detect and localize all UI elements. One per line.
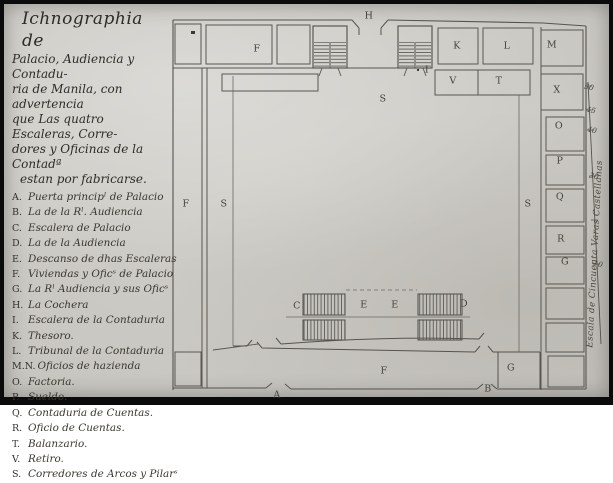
legend-entry: F.Viviendas y Oficˢ de Palacio <box>12 267 166 282</box>
legend-text: La de la Audiencia <box>26 237 126 249</box>
legend-entry: H.La Cochera <box>12 298 166 313</box>
legend-key: S. <box>12 468 26 482</box>
legend-key: L. <box>12 345 26 359</box>
legend-entry: A.Puerta principˡ de Palacio <box>12 190 166 205</box>
legend-text: Viviendas y Oficˢ de Palacio <box>26 268 173 280</box>
legend-entry: O.Factoria. <box>12 375 166 390</box>
legend-text: Escalera de Palacio <box>26 222 131 234</box>
legend-entry: L.Tribunal de la Contaduria <box>12 344 166 359</box>
legend-text: Descanso de dhas Escaleras <box>26 253 177 265</box>
legend-text: La Rˡ Audiencia y sus Oficˢ <box>26 283 168 295</box>
legend-text: La Cochera <box>26 299 88 311</box>
legend-text: Oficios de hazienda <box>35 360 140 372</box>
legend-key: O. <box>12 376 26 390</box>
legend-key: P. <box>12 391 26 405</box>
legend-text: Oficio de Cuentas. <box>26 422 125 434</box>
legend-key: A. <box>12 191 26 205</box>
legend-text: Retiro. <box>26 453 64 465</box>
legend-key: D. <box>12 237 26 251</box>
legend-key: C. <box>12 222 26 236</box>
legend-entry: R.Oficio de Cuentas. <box>12 421 166 436</box>
legend-key: V. <box>12 453 26 467</box>
legend-text: Puerta principˡ de Palacio <box>26 191 163 203</box>
legend-key: T. <box>12 438 26 452</box>
title-line: ria de Manila, con advertencia <box>12 82 166 112</box>
legend-text: Factoria. <box>26 376 75 388</box>
title-line: Ichnographia de <box>12 8 166 52</box>
title-line: estan por fabricarse. <box>12 172 166 187</box>
legend-list: A.Puerta principˡ de PalacioB.La de la R… <box>12 190 166 483</box>
legend-entry: G.La Rˡ Audiencia y sus Oficˢ <box>12 282 166 297</box>
legend-text: Balanzario. <box>26 438 87 450</box>
legend-entry: V.Retiro. <box>12 452 166 467</box>
title-line: dores y Oficinas de la Contadª <box>12 142 166 172</box>
legend-text: Thesoro. <box>26 330 74 342</box>
title-line: Palacio, Audiencia y Contadu- <box>12 52 166 82</box>
page-title: Ichnographia dePalacio, Audiencia y Cont… <box>12 8 166 187</box>
legend-key: I. <box>12 314 26 328</box>
legend-entry: M.N.Oficios de hazienda <box>12 359 166 374</box>
legend-key: E. <box>12 253 26 267</box>
legend-text: Sueldo. <box>26 391 67 403</box>
legend-entry: I.Escalera de la Contaduria <box>12 313 166 328</box>
legend-key: F. <box>12 268 26 282</box>
legend-entry: Q.Contaduria de Cuentas. <box>12 406 166 421</box>
legend-entry: P.Sueldo. <box>12 390 166 405</box>
legend-text: Corredores de Arcos y Pilarˢ <box>26 468 178 480</box>
legend-key: Q. <box>12 407 26 421</box>
legend-entry: B.La de la Rˡ. Audiencia <box>12 205 166 220</box>
legend-text: Contaduria de Cuentas. <box>26 407 153 419</box>
legend-entry: S.Corredores de Arcos y Pilarˢ <box>12 467 166 482</box>
legend-entry: D.La de la Audiencia <box>12 236 166 251</box>
legend-panel: Ichnographia dePalacio, Audiencia y Cont… <box>12 8 166 483</box>
legend-text: La de la Rˡ. Audiencia <box>26 206 143 218</box>
legend-key: R. <box>12 422 26 436</box>
legend-text: Tribunal de la Contaduria <box>26 345 164 357</box>
legend-key: M.N. <box>12 360 35 374</box>
legend-entry: C.Escalera de Palacio <box>12 221 166 236</box>
legend-entry: T.Balanzario. <box>12 437 166 452</box>
legend-entry: E.Descanso de dhas Escaleras <box>12 252 166 267</box>
title-line: que Las quatro Escaleras, Corre- <box>12 112 166 142</box>
legend-text: Escalera de la Contaduria <box>26 314 165 326</box>
legend-key: G. <box>12 283 26 297</box>
legend-entry: K.Thesoro. <box>12 329 166 344</box>
legend-key: B. <box>12 206 26 220</box>
legend-key: H. <box>12 299 26 313</box>
legend-key: K. <box>12 330 26 344</box>
